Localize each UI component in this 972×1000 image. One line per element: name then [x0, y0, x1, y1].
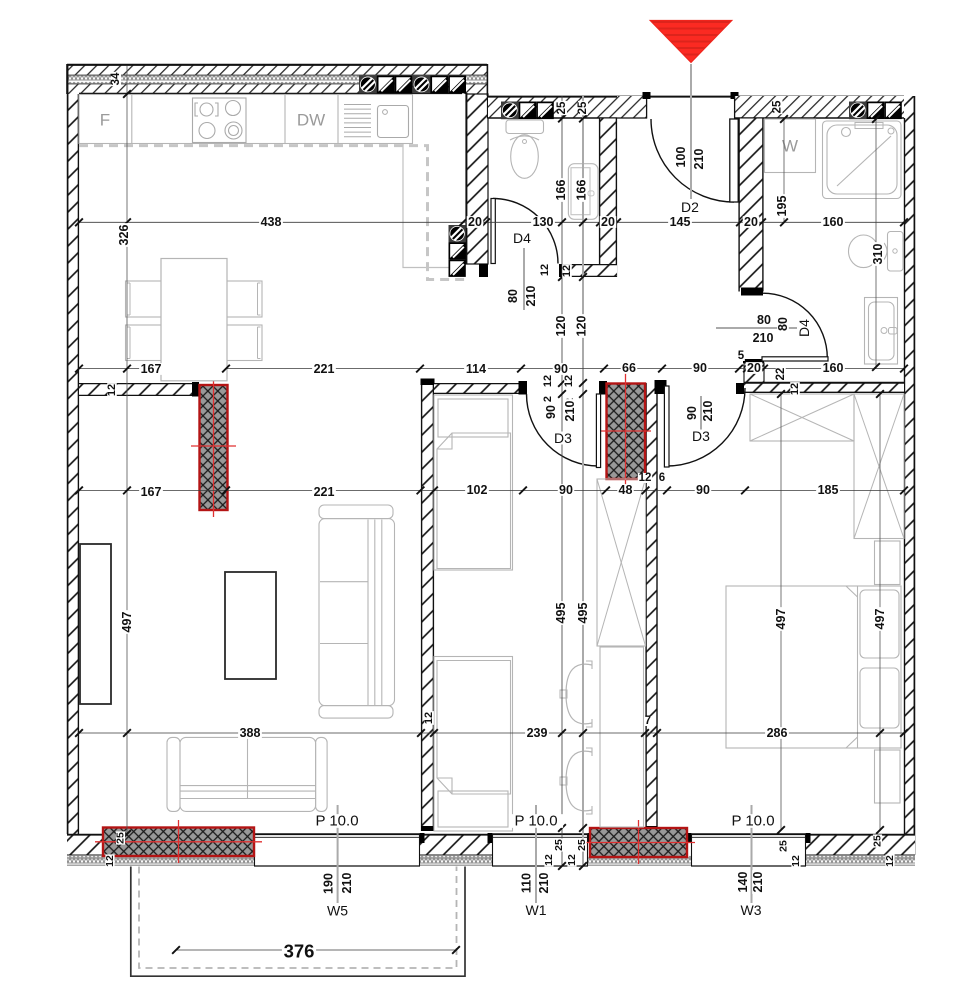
svg-text:310: 310 [871, 244, 885, 265]
svg-text:D4: D4 [513, 230, 531, 246]
svg-text:185: 185 [818, 483, 839, 497]
svg-text:25: 25 [556, 101, 568, 114]
svg-text:495: 495 [554, 603, 568, 624]
svg-text:167: 167 [141, 485, 162, 499]
svg-text:12: 12 [561, 265, 573, 277]
svg-text:376: 376 [284, 941, 315, 962]
svg-text:80: 80 [757, 313, 771, 327]
svg-text:160: 160 [823, 215, 844, 229]
svg-text:130: 130 [533, 215, 554, 229]
svg-text:DW: DW [297, 111, 325, 130]
svg-text:326: 326 [117, 225, 131, 246]
svg-text:W5: W5 [327, 903, 348, 919]
svg-text:286: 286 [767, 726, 788, 740]
svg-text:190: 190 [322, 873, 336, 894]
svg-text:239: 239 [527, 726, 548, 740]
svg-text:114: 114 [466, 362, 486, 376]
svg-text:102: 102 [467, 483, 488, 497]
svg-text:195: 195 [775, 196, 789, 217]
svg-text:497: 497 [873, 609, 887, 630]
svg-text:25: 25 [778, 840, 790, 852]
svg-text:12: 12 [539, 264, 551, 276]
svg-text:120: 120 [575, 316, 589, 337]
svg-text:P 10.0: P 10.0 [731, 813, 774, 830]
svg-text:90: 90 [544, 405, 558, 419]
svg-text:25: 25 [115, 832, 127, 844]
svg-text:90: 90 [696, 483, 710, 497]
svg-text:2: 2 [542, 396, 554, 402]
svg-text:80: 80 [506, 289, 520, 303]
svg-text:W3: W3 [741, 902, 762, 918]
svg-text:167: 167 [141, 362, 162, 376]
svg-text:12: 12 [563, 375, 575, 387]
svg-text:48: 48 [619, 483, 633, 497]
svg-text:34: 34 [110, 72, 122, 85]
svg-text:22: 22 [775, 368, 787, 381]
svg-text:P 10.0: P 10.0 [514, 813, 557, 830]
svg-text:210: 210 [692, 149, 706, 170]
svg-text:90: 90 [693, 361, 707, 375]
svg-text:F: F [100, 111, 110, 130]
svg-text:90: 90 [685, 406, 699, 420]
svg-text:221: 221 [314, 362, 335, 376]
svg-text:12: 12 [423, 712, 435, 724]
svg-text:12: 12 [790, 855, 802, 867]
svg-text:P 10.0: P 10.0 [315, 813, 358, 830]
svg-text:210: 210 [701, 401, 715, 422]
svg-text:12: 12 [104, 855, 116, 867]
svg-text:20: 20 [747, 361, 761, 375]
svg-text:210: 210 [340, 873, 354, 894]
svg-text:D3: D3 [692, 428, 710, 444]
svg-text:25: 25 [577, 101, 589, 114]
svg-text:120: 120 [554, 316, 568, 337]
svg-text:166: 166 [575, 180, 589, 201]
svg-text:497: 497 [774, 609, 788, 630]
svg-text:110: 110 [520, 873, 534, 893]
svg-text:100: 100 [674, 147, 688, 168]
svg-text:D3: D3 [554, 430, 572, 446]
svg-text:66: 66 [622, 361, 636, 375]
svg-text:210: 210 [751, 872, 765, 893]
svg-text:20: 20 [744, 215, 758, 229]
svg-text:D4: D4 [796, 319, 812, 337]
svg-text:6: 6 [659, 472, 665, 484]
svg-text:140: 140 [736, 872, 750, 893]
svg-text:20: 20 [601, 215, 615, 229]
svg-text:210: 210 [563, 401, 577, 422]
svg-text:12: 12 [542, 375, 554, 387]
svg-text:166: 166 [554, 180, 568, 201]
svg-text:12: 12 [106, 384, 118, 396]
svg-text:25: 25 [872, 835, 884, 847]
svg-text:145: 145 [670, 215, 691, 229]
svg-text:7: 7 [645, 715, 651, 727]
svg-text:221: 221 [314, 485, 335, 499]
svg-text:W1: W1 [526, 902, 547, 918]
svg-text:90: 90 [559, 483, 573, 497]
svg-text:D2: D2 [681, 199, 699, 215]
svg-text:438: 438 [261, 215, 282, 229]
svg-text:210: 210 [753, 331, 774, 345]
svg-text:90: 90 [554, 362, 568, 376]
svg-text:497: 497 [120, 612, 134, 633]
svg-text:80: 80 [776, 317, 790, 331]
svg-text:25: 25 [576, 839, 588, 851]
svg-text:12: 12 [884, 855, 896, 867]
svg-text:210: 210 [537, 873, 551, 894]
svg-text:495: 495 [576, 603, 590, 624]
svg-text:25: 25 [553, 839, 565, 851]
svg-text:160: 160 [823, 361, 844, 375]
svg-text:25: 25 [772, 100, 784, 113]
svg-text:12: 12 [789, 383, 801, 395]
svg-text:12: 12 [566, 854, 578, 866]
svg-text:12: 12 [543, 854, 555, 866]
svg-text:12: 12 [639, 472, 652, 484]
svg-text:5: 5 [738, 350, 745, 362]
svg-text:210: 210 [524, 286, 538, 307]
svg-text:388: 388 [240, 726, 261, 740]
svg-text:20: 20 [468, 215, 482, 229]
